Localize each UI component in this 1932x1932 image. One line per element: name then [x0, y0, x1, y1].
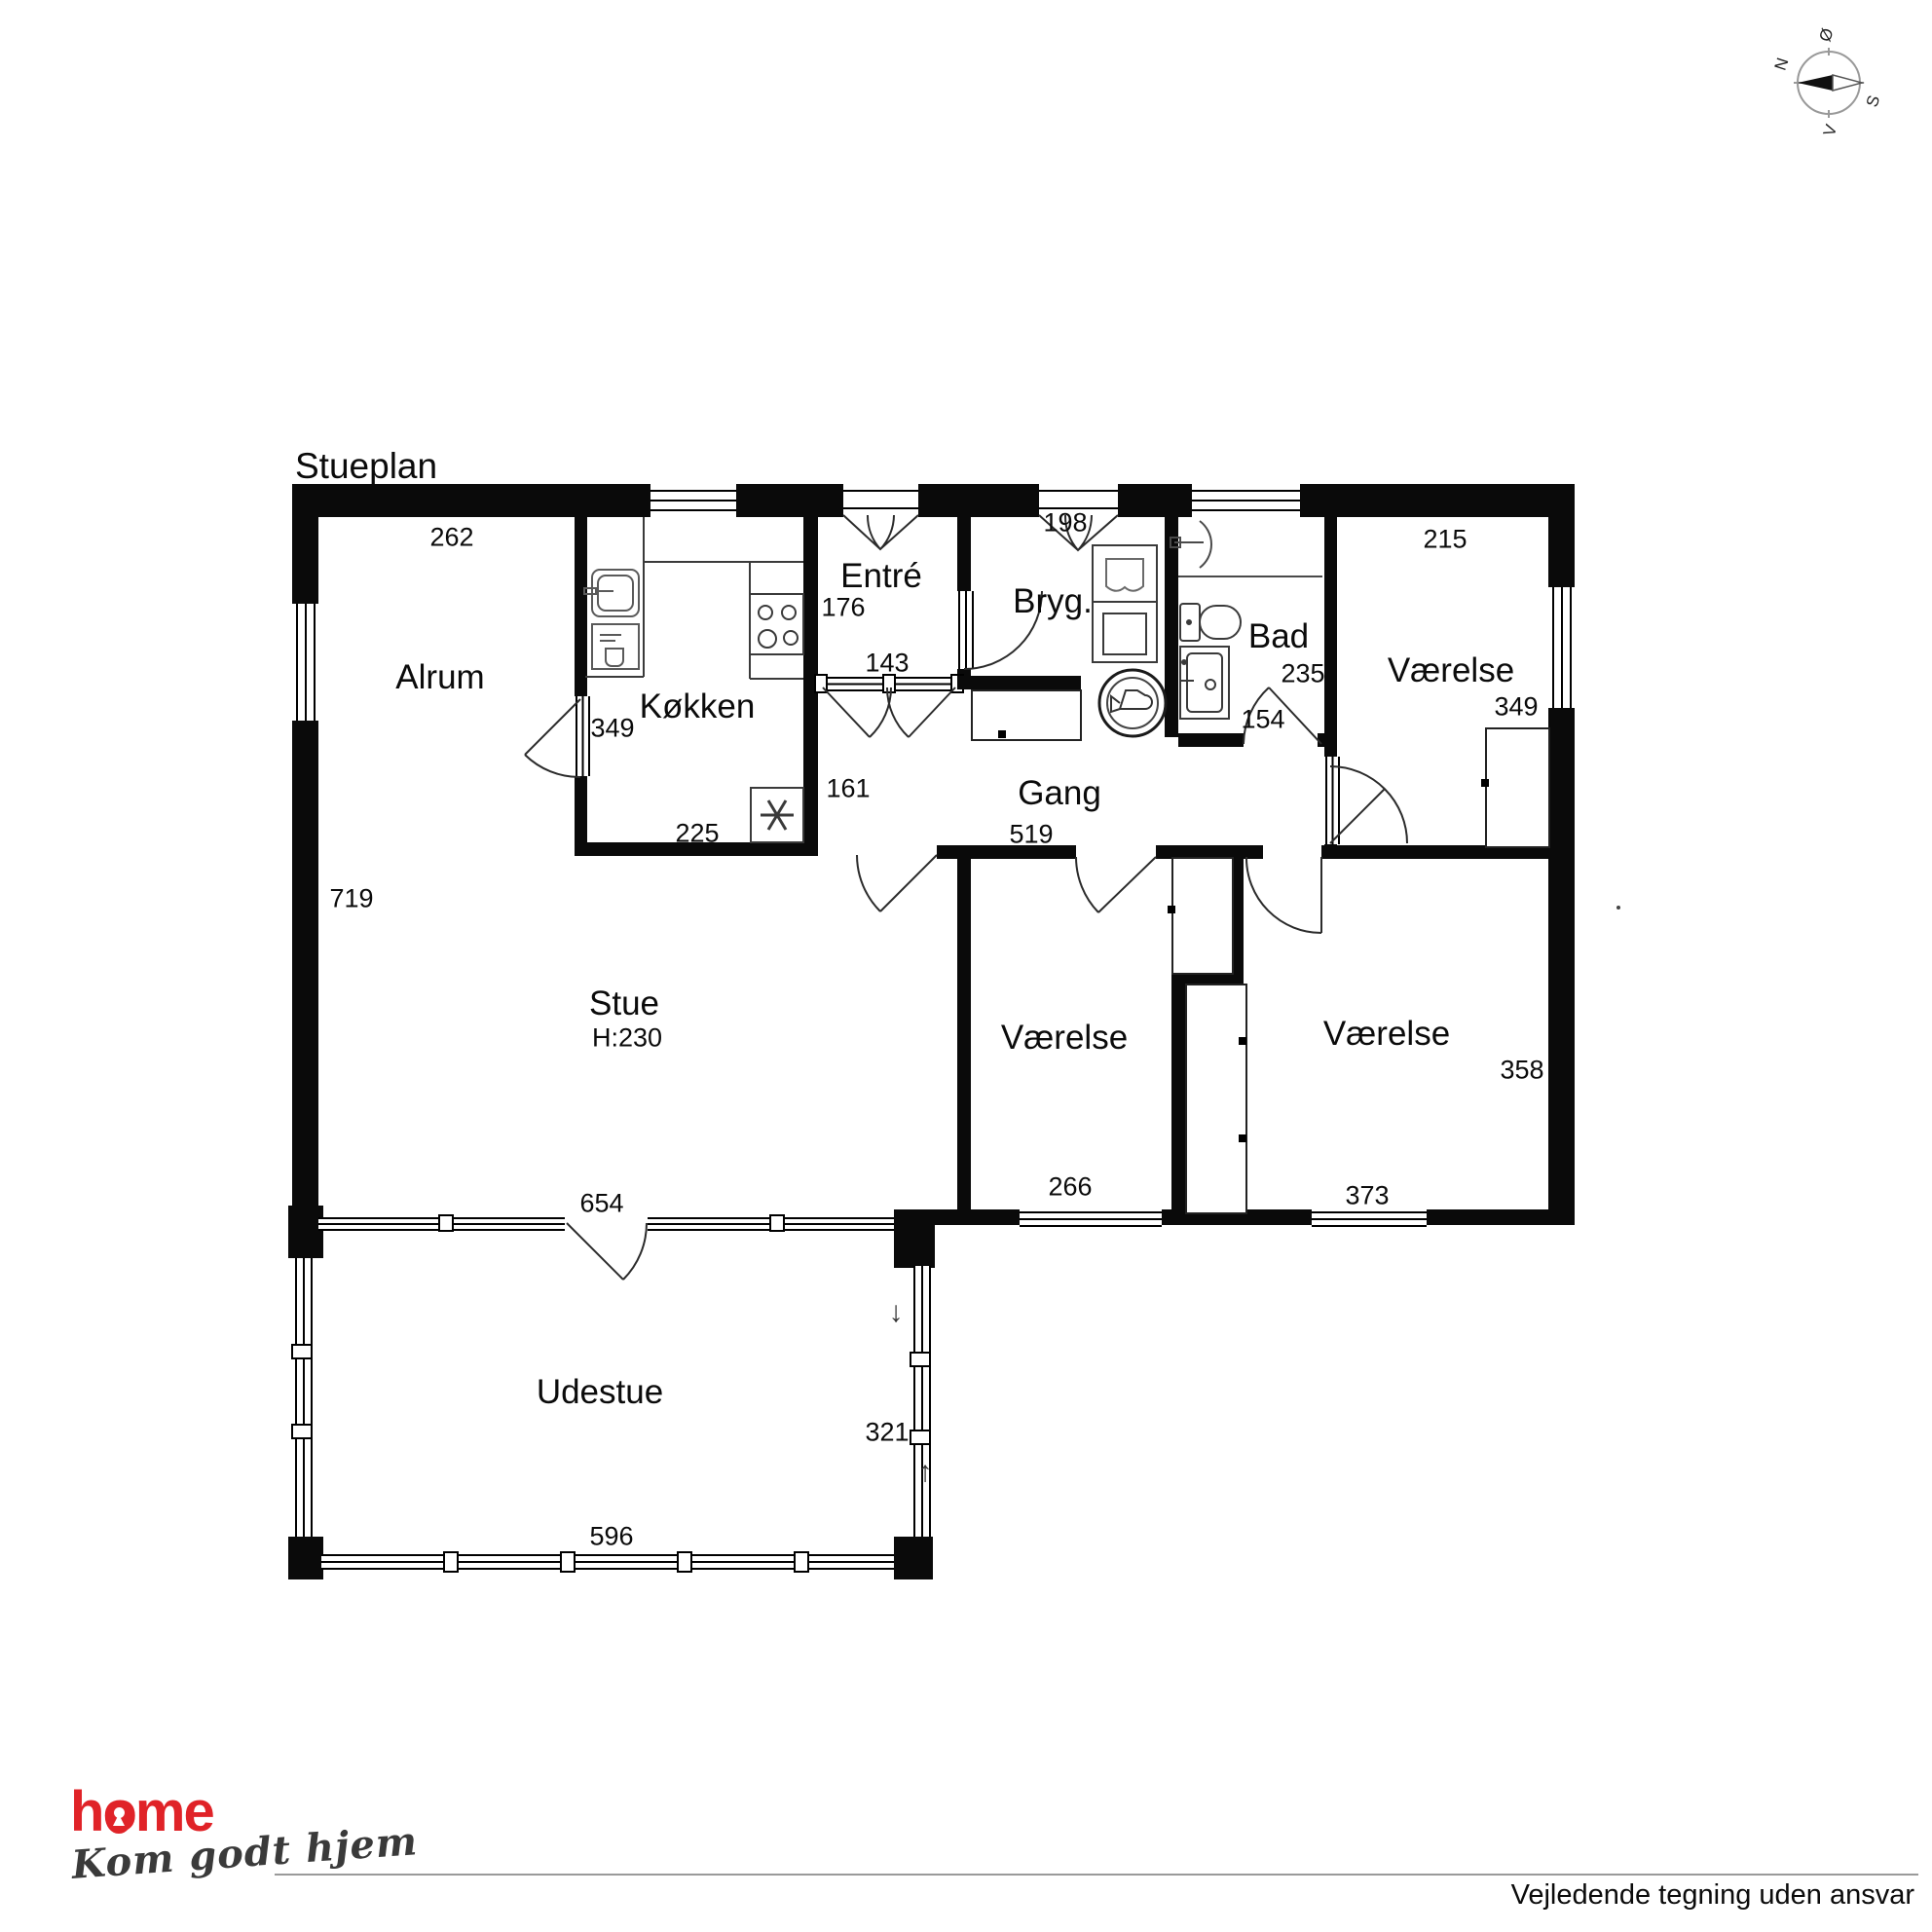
dim-vaerelse-ne-top: 215: [1423, 525, 1467, 555]
dim-bryg-door: 198: [1043, 508, 1087, 539]
step-arrow-up: ↑: [918, 1456, 933, 1489]
dim-udestue-bottom: 596: [589, 1522, 633, 1552]
floorplan-page: Ø N S V Stueplan Alrum Køkken Entré Bryg…: [0, 0, 1932, 1932]
dim-vaerelse-se-right: 358: [1500, 1056, 1543, 1086]
dim-bad-door: 154: [1241, 705, 1284, 735]
dim-entre-width: 143: [865, 649, 909, 679]
room-label-udestue: Udestue: [537, 1373, 663, 1412]
room-label-bryg: Bryg.: [1013, 582, 1093, 621]
room-label-vaerelse-ne: Værelse: [1388, 651, 1514, 690]
dim-stue-bottom: 654: [579, 1189, 623, 1219]
print-speck: [1616, 906, 1620, 910]
water-heater-icon: [1099, 670, 1166, 736]
dim-vaerelse-se-bottom: 373: [1345, 1181, 1389, 1211]
dim-gang-width: 519: [1009, 820, 1053, 850]
footer-divider: [275, 1874, 1918, 1876]
toilet-icon: [1180, 604, 1241, 641]
keyhole-stem-icon: [113, 1814, 125, 1826]
room-label-vaerelse-se: Værelse: [1323, 1015, 1450, 1054]
home-logo: home Kom godt hjem: [70, 1784, 417, 1888]
dim-entre-depth: 176: [821, 593, 865, 623]
room-label-stue: Stue: [589, 985, 659, 1023]
room-label-vaerelse-mid: Værelse: [1001, 1019, 1128, 1058]
dim-bad-width: 235: [1281, 659, 1324, 689]
stove-icon: [750, 594, 803, 654]
kitchen-sink-icon: [584, 570, 639, 616]
room-label-kokken: Køkken: [640, 687, 756, 726]
dim-kokken-door: 349: [590, 714, 634, 744]
room-label-gang: Gang: [1018, 774, 1101, 813]
room-label-alrum: Alrum: [395, 658, 484, 697]
dishwasher-icon: [592, 624, 639, 669]
dim-vaerelse-mid-bottom: 266: [1048, 1172, 1092, 1203]
shower-icon: [1170, 521, 1322, 576]
room-label-bad: Bad: [1248, 617, 1309, 656]
brand-letter: h: [70, 1780, 102, 1843]
compass-rose: [1794, 48, 1864, 118]
disclaimer-text: Vejledende tegning uden ansvar: [1511, 1879, 1914, 1912]
dim-alrum-left: 719: [329, 884, 373, 914]
washer-dryer-icon: [1093, 545, 1157, 662]
dim-vaerelse-ne-right: 349: [1494, 692, 1538, 723]
step-arrow-down: ↓: [889, 1296, 904, 1329]
dim-kokken-right: 161: [826, 774, 870, 804]
brand-keyhole-o: o: [102, 1784, 134, 1840]
room-height-stue: H:230: [592, 1023, 662, 1054]
freezer-icon: [751, 788, 803, 842]
plan-linework: [0, 0, 1932, 1932]
room-label-entre: Entré: [840, 557, 922, 596]
dim-alrum-top: 262: [429, 523, 473, 553]
dim-kokken-bottom: 225: [675, 819, 719, 849]
dim-udestue-right: 321: [865, 1418, 909, 1448]
bathroom-sink-icon: [1180, 647, 1229, 719]
page-title: Stueplan: [295, 446, 437, 487]
